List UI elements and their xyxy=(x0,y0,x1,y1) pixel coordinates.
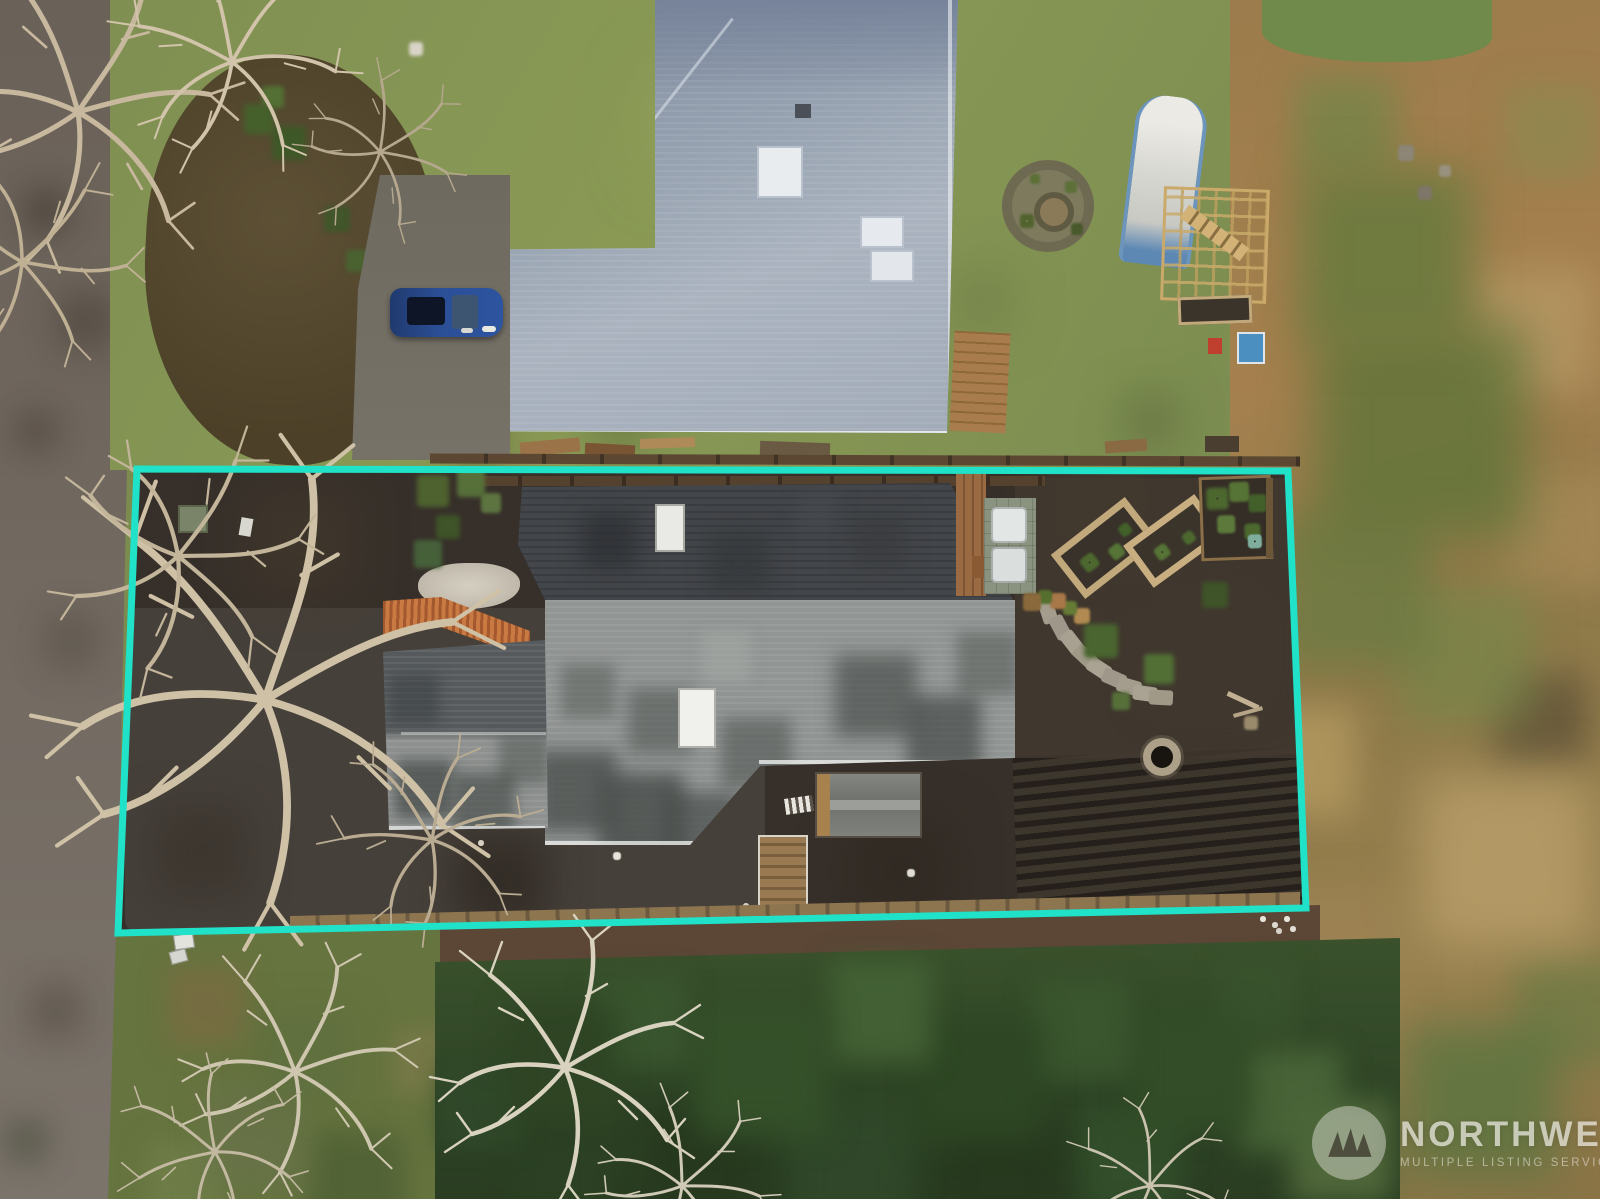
bare-tree-white xyxy=(430,915,703,1199)
bare-tree-white xyxy=(1042,1071,1257,1199)
watermark-brand: NORTHWEST xyxy=(1400,1117,1600,1152)
bare-tree xyxy=(282,690,578,983)
watermark: NORTHWEST MULTIPLE LISTING SERVICE xyxy=(1312,1106,1600,1180)
three-peaks-icon xyxy=(1323,1123,1375,1163)
bare-tree xyxy=(158,921,436,1199)
bare-tree xyxy=(0,134,162,390)
aerial-photo: NORTHWEST MULTIPLE LISTING SERVICE xyxy=(0,0,1600,1199)
watermark-subtitle: MULTIPLE LISTING SERVICE xyxy=(1400,1158,1600,1170)
overlay-svg xyxy=(0,0,1600,1199)
watermark-logo xyxy=(1312,1106,1386,1180)
bare-tree xyxy=(71,0,392,222)
bare-tree-white xyxy=(556,1053,813,1199)
bare-tree xyxy=(262,30,502,272)
